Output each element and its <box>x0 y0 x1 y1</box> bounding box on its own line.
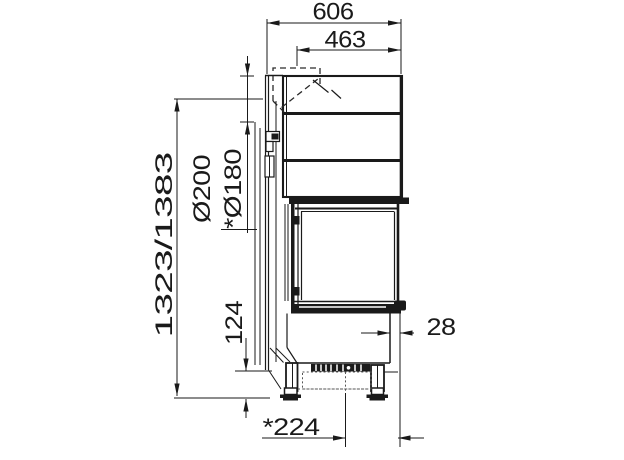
dim-plinth-height: 124 <box>221 301 272 418</box>
dim-label-base-depth: *224 <box>263 414 320 441</box>
dim-label-flue-diameter-alt: *Ø180 <box>220 149 247 229</box>
dim-upper-width: 463 <box>297 27 401 67</box>
air-grille <box>311 364 370 372</box>
door-latch-knob <box>394 301 406 311</box>
dim-label-total-width: 606 <box>313 0 354 26</box>
dim-overall-height: 1323/1383 <box>151 99 270 398</box>
dim-label-overall-height: 1323/1383 <box>151 152 178 337</box>
dim-label-upper-width: 463 <box>325 27 366 54</box>
dim-label-flue-diameter: Ø200 <box>189 155 216 223</box>
base-unit <box>287 314 398 373</box>
dim-label-plinth-height: 124 <box>221 301 248 345</box>
drawing-canvas: 606 463 Ø200 *Ø180 1323/1383 124 <box>0 0 624 460</box>
dim-label-front-offset: 28 <box>427 314 456 341</box>
fireplace-side-elevation-drawing: 606 463 Ø200 *Ø180 1323/1383 124 <box>0 0 624 460</box>
firebox-door <box>285 198 409 314</box>
dim-front-offset: 28 <box>361 314 456 341</box>
hood-casing <box>283 76 402 197</box>
dim-flue-diameter: Ø200 *Ø180 <box>189 56 257 233</box>
